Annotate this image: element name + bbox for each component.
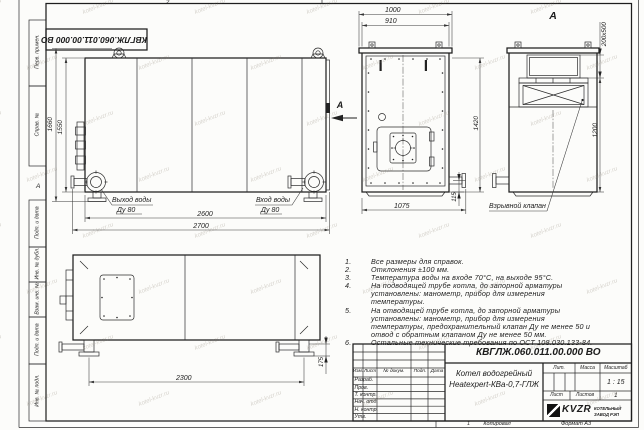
boiler-body-top: [73, 255, 320, 340]
lifting-eye: [311, 48, 325, 58]
row-nach-otd: Нач. отд.: [355, 400, 378, 405]
margin-label-perv-primen: Перв. примен.: [35, 22, 40, 82]
zone-number-top: 2: [166, 0, 169, 6]
dim-1660: 1660: [47, 94, 54, 154]
panel-bolts: [368, 58, 444, 184]
label-water-outlet: Выход воды: [112, 197, 151, 204]
product-name-line2: Heatexpert-КВа-0,7-ГЛЖ: [445, 381, 543, 389]
side-ladder: [76, 122, 86, 170]
dim-1075: 1075: [394, 203, 410, 210]
row-n-kontr: Н. контр.: [355, 408, 378, 413]
copied-label: Копировал: [477, 422, 517, 428]
flue-outlet: [527, 55, 580, 78]
doc-number: КВГЛЖ.060.011.00.000 ВО: [445, 348, 632, 358]
dim-1000: 1000: [385, 7, 401, 14]
engineering-drawing-sheet: КВГЛЖ.060.011.00.000 ВО 2 1 А Копировал …: [0, 0, 644, 430]
label-water-outlet-dn: Ду 80: [117, 207, 135, 214]
product-name-line1: Котел водогрейный: [445, 370, 543, 378]
row-razrab: Разраб.: [355, 378, 374, 383]
zone-number-bottom: 1: [467, 422, 470, 428]
dim-1420: 1420: [473, 93, 480, 153]
dim-2300: 2300: [176, 375, 192, 382]
row-t-kontr: Т. контр.: [355, 393, 377, 398]
col-header-doc: № докум.: [378, 370, 410, 375]
front-panel: [366, 56, 445, 186]
top-stamp-number: КВГЛЖ.060.011.00.000 ВО: [46, 29, 147, 50]
top-view: [59, 255, 330, 386]
lit-label: Лит.: [543, 366, 575, 371]
boiler-body-front: [85, 58, 326, 192]
water-inlet-flange: [288, 171, 326, 194]
company-name-line1: КОТЕЛЬНЫЙ: [594, 407, 621, 411]
label-water-inlet-dn: Ду 80: [261, 207, 279, 214]
mass-label: Масса: [575, 366, 600, 371]
dim-115: 115: [452, 167, 458, 227]
zone-letter-left: А: [36, 184, 40, 191]
view-a: [489, 22, 604, 211]
scale-label: Масштаб: [600, 366, 632, 371]
row-utv: Утв.: [355, 415, 367, 420]
note-item: 6.Остальные технические требования по ОС…: [342, 339, 594, 347]
side-view: [359, 11, 484, 214]
note-item: 4.На подводящей трубе котла, до запорной…: [342, 282, 594, 306]
view-a-direction-arrow: [331, 115, 357, 122]
scale-value: 1 : 15: [600, 379, 632, 386]
note-item: 5.На отводящей трубе котла, до запорной …: [342, 307, 594, 339]
dim-200x500: 200х500: [601, 4, 607, 64]
front-view: [52, 48, 357, 234]
dim-2600: 2600: [185, 211, 225, 218]
view-a-title: А: [546, 11, 560, 22]
dim-910: 910: [385, 18, 397, 25]
label-explosion-valve: Взрывной клапан: [489, 203, 546, 210]
dim-2700: 2700: [181, 223, 221, 230]
sheets-value: 1: [600, 393, 632, 400]
explosion-valve: [519, 78, 588, 107]
technical-notes: 1.Все размеры для справок. 2.Отклонения …: [342, 258, 594, 347]
sheet-label: Лист: [543, 393, 570, 398]
row-prov: Пров.: [355, 386, 369, 391]
company-logo-text: KVZR: [562, 405, 591, 415]
dim-1200: 1200: [593, 100, 600, 160]
col-header-list: Лист: [362, 370, 378, 375]
company-logo-icon: [547, 404, 560, 417]
dim-1550: 1550: [58, 97, 65, 157]
burner-plate: [374, 127, 435, 171]
margin-label-inv-podl: Инв. № подл.: [35, 361, 40, 421]
label-water-inlet: Вход воды: [256, 197, 290, 204]
inspection-hatch: [100, 275, 134, 320]
sheets-label: Листов: [570, 393, 600, 398]
company-name-line2: ЗАВОД РЭП: [594, 413, 619, 417]
view-a-arrow-letter: А: [334, 101, 346, 110]
margin-label-sprav: Справ. №: [35, 95, 40, 155]
dim-175: 175: [319, 332, 325, 392]
format-label: Формат А3: [556, 422, 596, 428]
sight-glass: [379, 114, 386, 121]
valve-leader: [547, 101, 582, 211]
